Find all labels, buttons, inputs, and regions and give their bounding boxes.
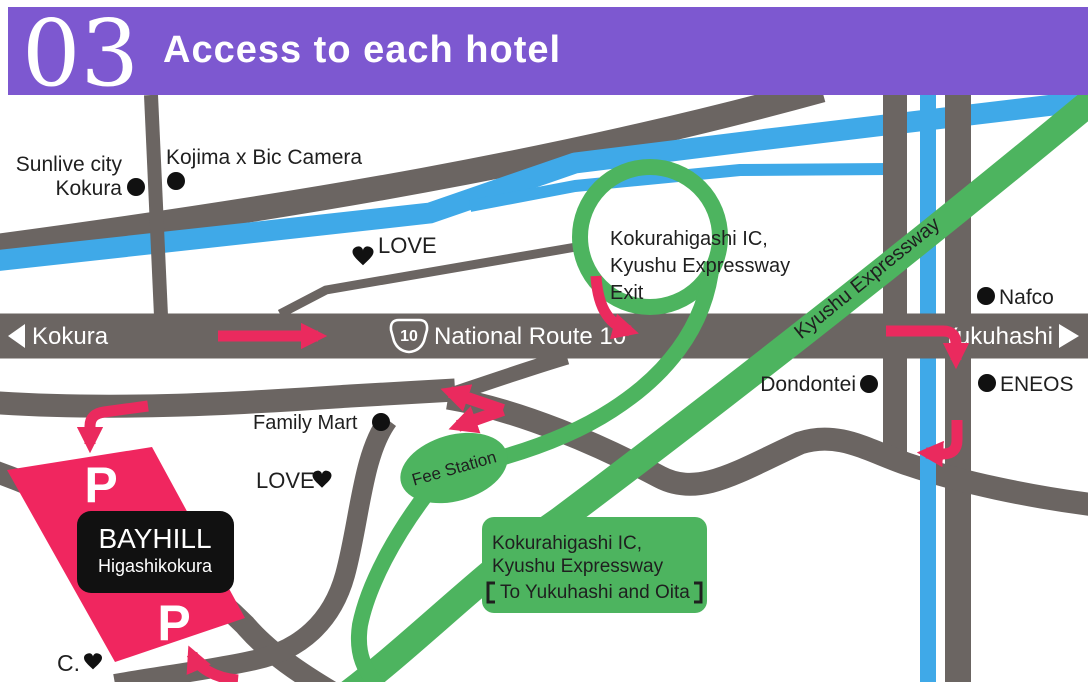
exit-note-line2: Kyushu Expressway bbox=[610, 255, 790, 277]
c-spot-label: C. bbox=[57, 650, 80, 676]
parking-mark-south: P bbox=[157, 595, 190, 651]
love-north-label: LOVE bbox=[378, 233, 437, 258]
header-number: 03 bbox=[22, 0, 139, 107]
ic-box-line2: Kyushu Expressway bbox=[492, 556, 664, 577]
ic-box-line3: To Yukuhashi and Oita bbox=[500, 582, 690, 603]
poi-nafco: Nafco bbox=[977, 286, 1054, 309]
sunlive-label-line2: Kokura bbox=[55, 177, 122, 200]
ic-box-line1: Kokurahigashi IC, bbox=[492, 533, 642, 554]
dondontei-label: Dondontei bbox=[760, 373, 856, 396]
heart-icon bbox=[313, 471, 332, 488]
poi-eneos: ENEOS bbox=[978, 373, 1074, 396]
road-vertical-west bbox=[151, 95, 161, 316]
route10-name-label: National Route 10 bbox=[434, 323, 626, 350]
love-south-label: LOVE bbox=[256, 468, 315, 493]
nafco-label: Nafco bbox=[999, 286, 1054, 309]
sunlive-dot-icon bbox=[127, 178, 145, 196]
exit-note-line3: Exit bbox=[610, 282, 644, 304]
poi-love-north: LOVE bbox=[353, 233, 437, 265]
kojima-dot-icon bbox=[167, 172, 185, 190]
family-mart-dot-icon bbox=[372, 413, 390, 431]
access-map-page: Fee Station Kyushu Expressway Kokurahiga… bbox=[0, 0, 1088, 682]
exit-note-line1: Kokurahigashi IC, bbox=[610, 228, 768, 250]
sunlive-label-line1: Sunlive city bbox=[16, 153, 123, 176]
heart-icon bbox=[84, 653, 102, 669]
poi-kojima: Kojima x Bic Camera bbox=[166, 146, 362, 190]
eneos-dot-icon bbox=[978, 374, 996, 392]
poi-sunlive: Sunlive city Kokura bbox=[16, 153, 145, 200]
route10-west-label: Kokura bbox=[32, 323, 109, 350]
kojima-label: Kojima x Bic Camera bbox=[166, 146, 362, 169]
road-branch-to-route10 bbox=[448, 357, 567, 396]
fee-station-badge: Fee Station bbox=[392, 421, 516, 515]
hotel-area-label: Higashikokura bbox=[98, 556, 213, 576]
nafco-dot-icon bbox=[977, 287, 995, 305]
page-title: Access to each hotel bbox=[163, 29, 561, 71]
poi-family-mart: Family Mart bbox=[253, 412, 390, 434]
route-arrow-parking-north bbox=[90, 406, 148, 444]
route10-shield-number: 10 bbox=[400, 328, 418, 345]
heart-icon bbox=[353, 246, 374, 265]
family-mart-label: Family Mart bbox=[253, 412, 358, 434]
poi-love-south: LOVE bbox=[256, 468, 332, 493]
parking-mark-north: P bbox=[84, 457, 117, 513]
poi-c-spot: C. bbox=[57, 650, 102, 676]
dondontei-dot-icon bbox=[860, 375, 878, 393]
eneos-label: ENEOS bbox=[1000, 373, 1074, 396]
road-family-mart bbox=[0, 390, 455, 406]
ic-info-box: Kokurahigashi IC, Kyushu Expressway To Y… bbox=[482, 517, 707, 613]
hotel-name-box: BAYHILL Higashikokura bbox=[77, 511, 234, 593]
poi-dondontei: Dondontei bbox=[760, 373, 878, 396]
hotel-name-label: BAYHILL bbox=[98, 523, 211, 554]
